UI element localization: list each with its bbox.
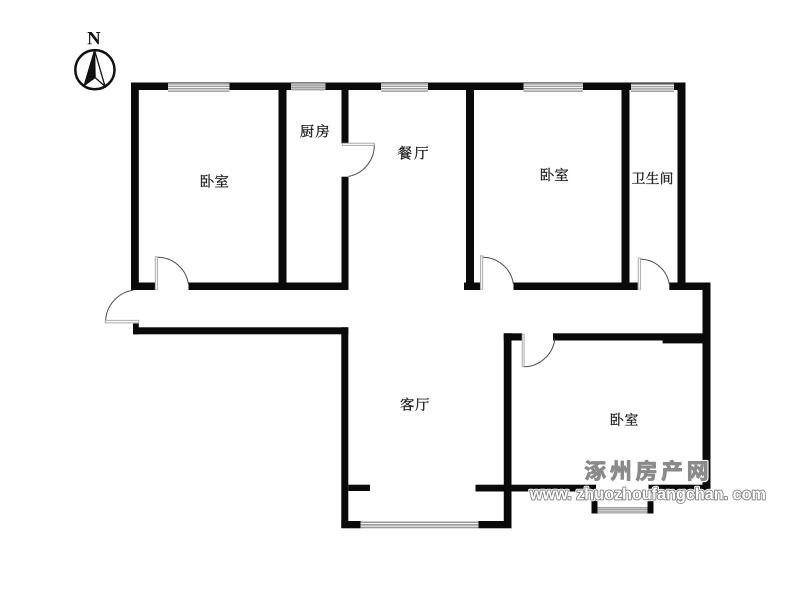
svg-text:www. zhuozhoufangchan. com: www. zhuozhoufangchan. com — [529, 485, 766, 503]
